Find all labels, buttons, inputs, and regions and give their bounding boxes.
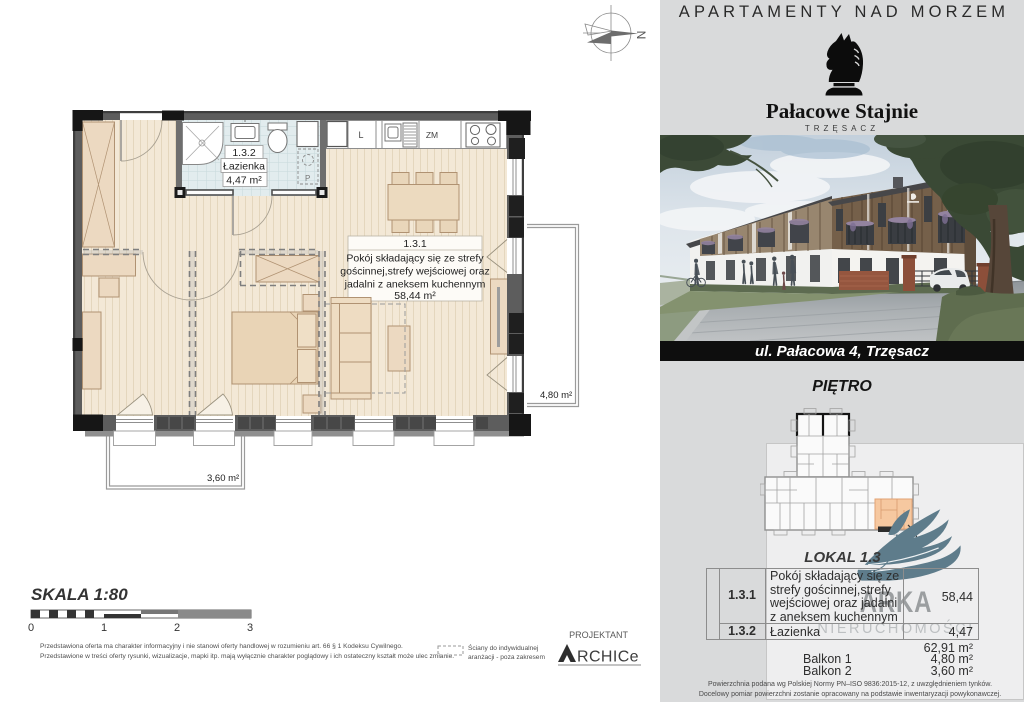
svg-text:2: 2 [174, 622, 180, 634]
svg-text:RCHICe: RCHICe [577, 649, 639, 666]
svg-text:Ściany do indywidualnej: Ściany do indywidualnej [468, 643, 539, 652]
svg-text:4,80 m²: 4,80 m² [540, 390, 572, 401]
svg-text:aranżacji - poza zakresem: aranżacji - poza zakresem [468, 654, 545, 661]
svg-text:P: P [305, 174, 310, 183]
svg-text:SKALA 1:80: SKALA 1:80 [31, 585, 128, 604]
svg-text:N: N [634, 31, 648, 40]
svg-text:1.3.2: 1.3.2 [232, 147, 256, 159]
svg-text:3,60 m²: 3,60 m² [207, 473, 239, 484]
svg-text:jadalni z aneksem kuchennym: jadalni z aneksem kuchennym [344, 279, 486, 291]
svg-text:0: 0 [28, 622, 34, 634]
svg-text:4,47 m²: 4,47 m² [226, 175, 262, 187]
svg-text:Łazienka: Łazienka [223, 161, 265, 173]
svg-text:1: 1 [101, 622, 107, 634]
svg-text:ZM: ZM [426, 130, 438, 140]
svg-text:Przedstawione w treści oferty: Przedstawione w treści oferty rysunki, w… [40, 653, 454, 660]
svg-text:58,44 m²: 58,44 m² [394, 290, 436, 302]
svg-text:gościnnej,strefy wejściowej or: gościnnej,strefy wejściowej oraz [340, 266, 489, 278]
svg-text:3: 3 [247, 622, 253, 634]
svg-text:PROJEKTANT: PROJEKTANT [569, 630, 628, 640]
svg-text:L: L [358, 130, 363, 140]
svg-text:1.3.1: 1.3.1 [403, 238, 427, 250]
svg-text:Pokój składający się ze strefy: Pokój składający się ze strefy [346, 253, 484, 265]
svg-text:Przedstawiona oferta ma charak: Przedstawiona oferta ma charakter inform… [40, 643, 403, 650]
